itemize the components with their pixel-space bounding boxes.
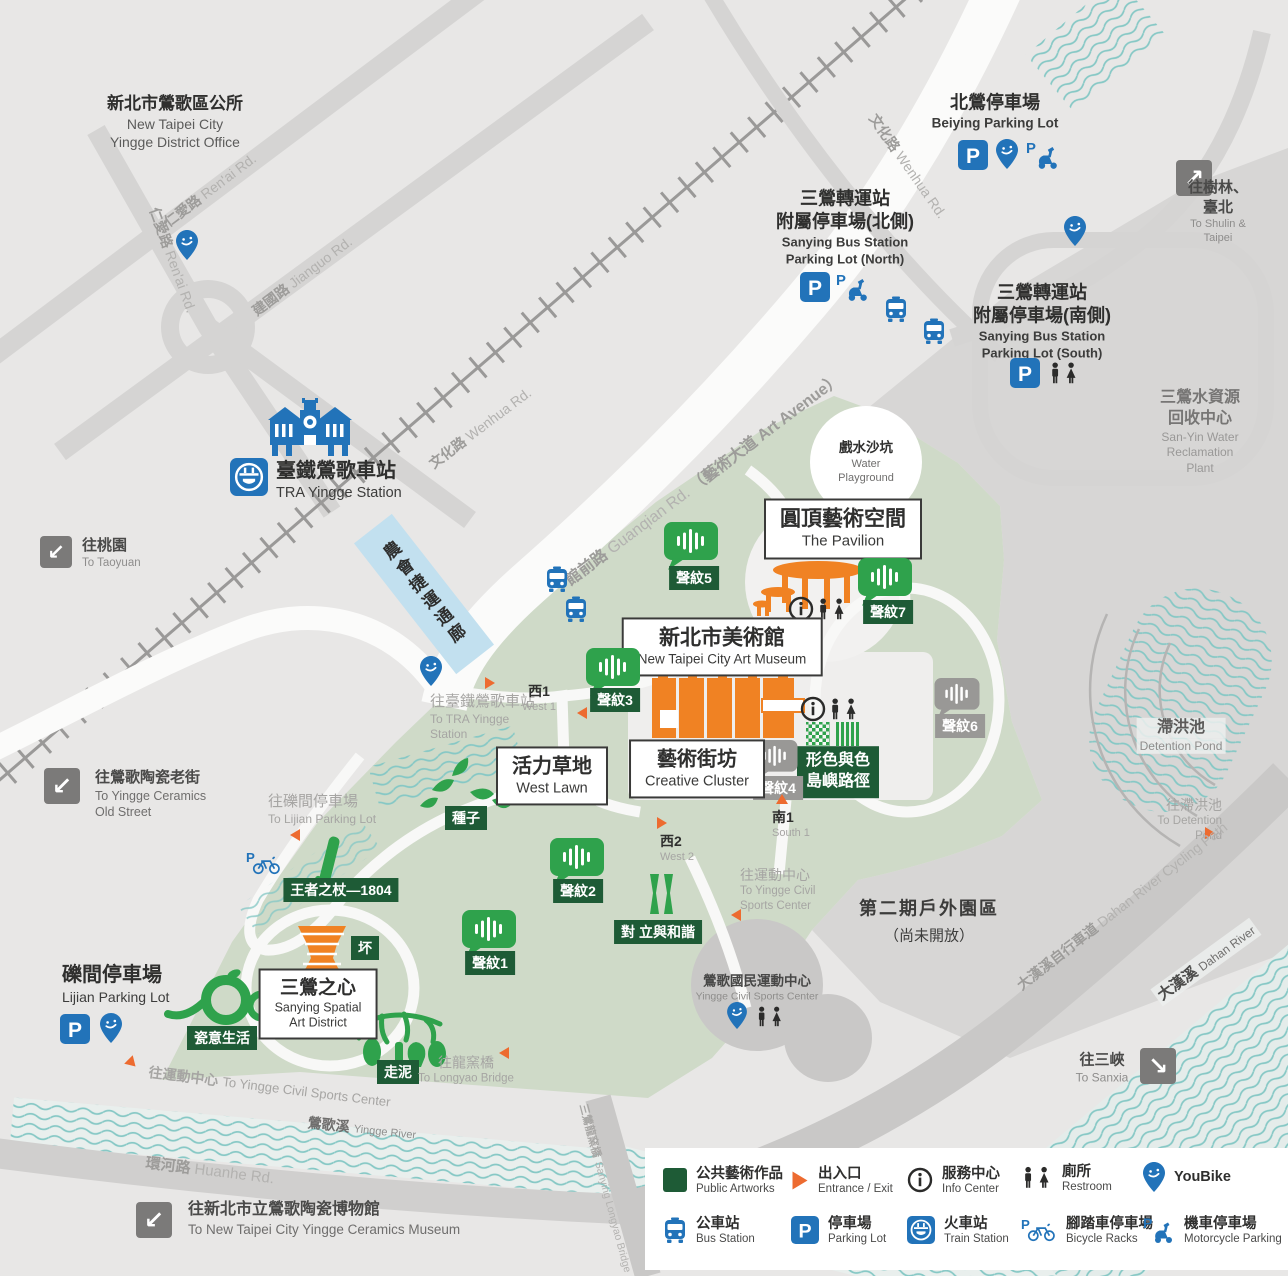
scepter-tag: 王者之杖—1804 [283, 878, 398, 902]
district-office-label: 新北市鶯歌區公所 New Taipei City Yingge District… [107, 93, 243, 151]
entrance-triangle-icon [576, 706, 588, 720]
bus-station-icon [884, 296, 908, 323]
to-old-street-label: 往鶯歌陶瓷老街 To Yingge Ceramics Old Street [95, 768, 206, 820]
walking-mud-tag: 走泥 [377, 1060, 419, 1084]
restroom-icon [1048, 362, 1080, 385]
youbike-icon [1143, 1162, 1165, 1192]
soundwave2-tag: 聲紋2 [553, 879, 603, 903]
sports-center-label: 鶯歌國民運動中心 Yingge Civil Sports Center [696, 972, 819, 1003]
train-station-building-icon [268, 398, 352, 458]
legend-bus-station: 公車站Bus Station [663, 1216, 755, 1245]
youbike-icon [176, 230, 198, 260]
motorcycle-parking-icon [1143, 1216, 1175, 1244]
yingge-art-museum-map: P [0, 0, 1288, 1276]
to-taoyuan-arrow-icon [40, 536, 72, 568]
pei-tag: 坏 [351, 936, 379, 960]
reclamation-plant-label: 三鶯水資源 回收中心 San-Yin Water Reclamation Pla… [1156, 388, 1244, 476]
lijian-parking-label: 礫間停車場 Lijian Parking Lot [62, 962, 169, 1006]
youbike-icon [727, 1002, 747, 1029]
legend-bicycle-racks: 腳踏車停車場Bicycle Racks [1021, 1216, 1153, 1245]
public-artwork-icon [663, 1168, 687, 1192]
bus-station-icon [922, 318, 946, 345]
legend-info-center: 服務中心Info Center [907, 1166, 1000, 1195]
seed-tag: 種子 [445, 806, 487, 830]
bicycle-racks-icon [1021, 1217, 1057, 1243]
youbike-icon [100, 1013, 122, 1043]
tra-logo-icon [907, 1216, 935, 1244]
sanying-heart-label-box: 三鶯之心 Sanying Spatial Art District [259, 969, 378, 1040]
sanying-north-label: 三鶯轉運站 附屬停車場(北側) Sanying Bus Station Park… [776, 188, 914, 269]
to-tra-station-label: 往臺鐵鶯歌車站 To TRA Yingge Station [430, 692, 535, 743]
map-legend: 公共藝術作品Public Artworks 出入口Entrance / Exit… [645, 1148, 1288, 1270]
west2-entrance-label: 西2 West 2 [660, 832, 694, 864]
legend-train-station: 火車站Train Station [907, 1216, 1009, 1245]
parking-icon [1010, 358, 1040, 388]
harmony-tag: 對 立與和諧 [614, 920, 702, 944]
legend-parking: 停車場Parking Lot [791, 1216, 886, 1245]
parking-icon [800, 272, 830, 302]
soundwave1-tag: 聲紋1 [465, 951, 515, 975]
restroom-icon [755, 1006, 785, 1028]
to-shulin-label: 往樹林、臺北 To Shulin & Taipei [1183, 178, 1253, 246]
motorcycle-parking-icon [1026, 140, 1060, 170]
porcelain-life-tag: 瓷意生活 [187, 1026, 257, 1050]
entrance-triangle-icon [730, 908, 742, 922]
restroom-icon [828, 698, 860, 721]
sanying-south-label: 三鶯轉運站 附屬停車場(南側) Sanying Bus Station Park… [973, 282, 1111, 363]
beiying-parking-label: 北鶯停車場 Beiying Parking Lot [932, 92, 1059, 133]
parking-icon [791, 1216, 819, 1244]
soundwave6-tag: 聲紋6 [935, 714, 985, 738]
to-ceramics-museum-arrow-icon [136, 1202, 172, 1238]
soundwave-icon [664, 522, 718, 570]
west1-entrance-label: 西1 West 1 [522, 682, 556, 714]
west-lawn-label-box: 活力草地 West Lawn [496, 746, 608, 805]
pavilion-label-box: 圓頂藝術空間 The Pavilion [764, 499, 922, 560]
entrance-triangle-icon [484, 676, 496, 690]
bus-station-icon [564, 596, 588, 623]
motorcycle-parking-icon [836, 272, 870, 302]
parking-icon [958, 140, 988, 170]
detention-pond-label: 滯洪池 Detention Pond [1137, 718, 1226, 754]
to-ceramics-museum-label: 往新北市立鶯歌陶瓷博物館 To New Taipei City Yingge C… [188, 1200, 460, 1238]
youbike-icon [420, 656, 442, 686]
to-sanxia-label: 往三峽 To Sanxia [1076, 1050, 1129, 1085]
creative-cluster-label-box: 藝術街坊 Creative Cluster [629, 739, 765, 798]
phase2-label: 第二期戶外園區 （尚未開放） [859, 898, 999, 947]
legend-motorcycle-parking: 機車停車場Motorcycle Parking [1143, 1216, 1282, 1245]
south1-entrance-label: 南1 South 1 [772, 808, 810, 840]
youbike-icon [1064, 216, 1086, 246]
restroom-icon [1021, 1166, 1053, 1190]
soundwave-icon-gray [934, 678, 980, 718]
legend-public-artworks: 公共藝術作品Public Artworks [663, 1166, 783, 1195]
entrance-triangle-icon [498, 1046, 510, 1060]
soundwave-icon [858, 558, 912, 606]
info-center-icon [907, 1167, 933, 1193]
bus-station-icon [545, 566, 569, 593]
youbike-icon [996, 139, 1018, 169]
entrance-triangle-icon [656, 816, 668, 830]
to-sanxia-arrow-icon [1140, 1048, 1176, 1084]
soundwave5-tag: 聲紋5 [669, 566, 719, 590]
tra-station-label: 臺鐵鶯歌車站 TRA Yingge Station [276, 458, 402, 503]
bus-station-icon [663, 1217, 687, 1244]
island-path-label: 形色與色 島嶼路徑 [797, 746, 879, 798]
parking-icon [60, 1014, 90, 1044]
to-taoyuan-label: 往桃園 To Taoyuan [82, 536, 141, 570]
soundwave7-tag: 聲紋7 [863, 600, 913, 624]
legend-youbike: YouBike [1143, 1162, 1231, 1192]
legend-restroom: 廁所Restroom [1021, 1164, 1112, 1193]
museum-label-box: 新北市美術館 New Taipei City Art Museum [622, 617, 823, 676]
entrance-triangle-icon [791, 1170, 809, 1191]
entrance-triangle-icon [289, 828, 301, 842]
to-lijian-label: 往礫間停車場 To Lijian Parking Lot [268, 792, 376, 827]
to-old-street-arrow-icon [44, 768, 80, 804]
bicycle-racks-icon [246, 850, 282, 876]
legend-entrance: 出入口Entrance / Exit [791, 1166, 893, 1195]
info-center-icon [800, 696, 826, 722]
tra-logo-icon [230, 458, 268, 496]
to-sports-center-label: 往運動中心 To Yingge Civil Sports Center [740, 866, 815, 914]
water-playground-label: 戲水沙坑 Water Playground [838, 439, 894, 485]
soundwave3-tag: 聲紋3 [590, 688, 640, 712]
entrance-triangle-icon [775, 793, 789, 805]
